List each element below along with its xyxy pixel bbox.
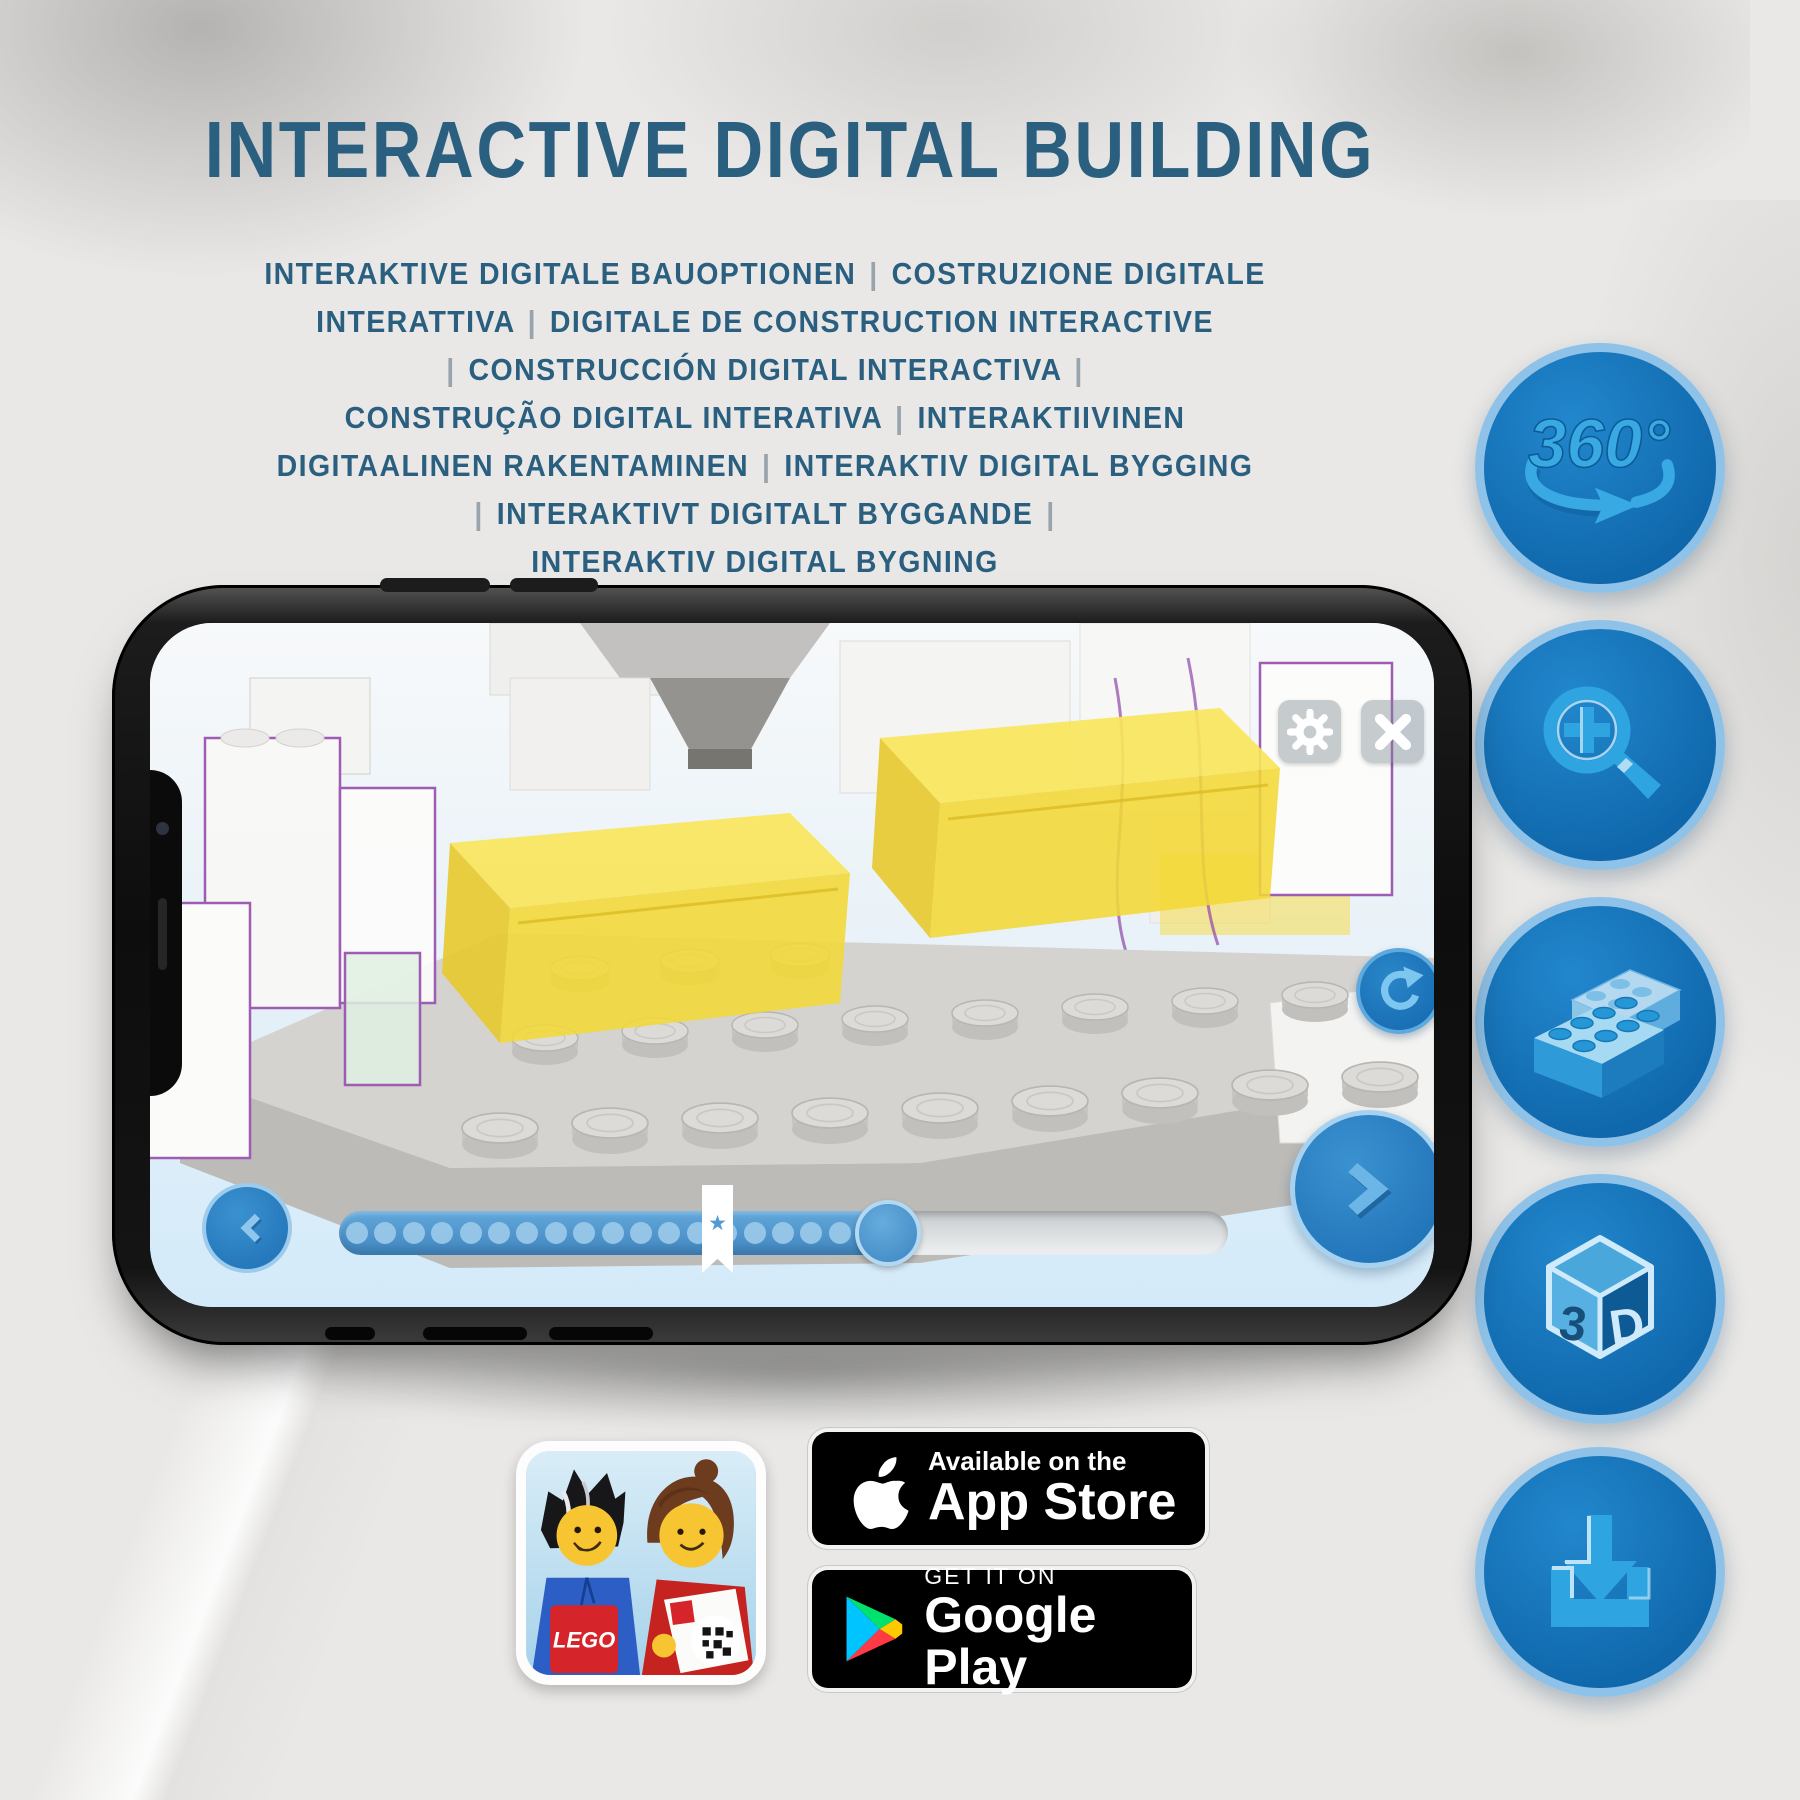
app-store-name: App Store [928, 1475, 1176, 1530]
zoom-in-icon [1525, 670, 1675, 820]
feature-3d-cube: 3 D [1475, 1174, 1725, 1424]
previous-step-button[interactable] [202, 1183, 292, 1273]
subtitle-line: INTERAKTIVE DIGITALE BAUOPTIONEN | COSTR… [93, 250, 1436, 298]
next-step-button[interactable] [1290, 1110, 1434, 1268]
stacked-bricks-icon [1518, 940, 1683, 1105]
rotate-cw-icon [1373, 965, 1425, 1017]
phone-screen: ★ [150, 623, 1434, 1307]
close-button[interactable] [1361, 700, 1424, 763]
feature-360-rotation: ​ 360° [1475, 343, 1725, 593]
progress-dot [829, 1222, 851, 1244]
progress-handle[interactable] [855, 1200, 921, 1266]
subtitle-line: DIGITAALINEN RAKENTAMINEN | INTERAKTIV D… [93, 442, 1436, 490]
google-play-name: Google Play [924, 1589, 1192, 1694]
poster: INTERACTIVE DIGITAL BUILDING INTERAKTIVE… [0, 0, 1800, 1800]
phone-reflection [260, 1352, 1340, 1430]
close-icon [1372, 711, 1414, 753]
progress-dot [488, 1222, 510, 1244]
star-icon: ★ [708, 1211, 727, 1236]
chevron-right-icon [1321, 1141, 1417, 1237]
subtitle-line: CONSTRUÇÃO DIGITAL INTERATIVA | INTERAKT… [93, 394, 1436, 442]
front-camera [156, 822, 169, 835]
speaker-slot [549, 1327, 653, 1340]
volume-button [380, 578, 490, 592]
progress-dot [630, 1222, 652, 1244]
subtitle-line: | INTERAKTIVT DIGITALT BYGGANDE | [93, 490, 1436, 538]
google-play-icon [836, 1586, 908, 1672]
speaker-slot [325, 1327, 375, 1340]
earpiece [158, 898, 167, 970]
page-title: INTERACTIVE DIGITAL BUILDING [162, 104, 1418, 196]
lego-logo: LEGO [553, 1627, 615, 1652]
google-play-badge[interactable]: GET IT ON Google Play [812, 1570, 1192, 1688]
yellow-slope-brick [872, 708, 1280, 938]
progress-dot [460, 1222, 482, 1244]
chevron-left-icon [221, 1202, 273, 1254]
settings-button[interactable] [1278, 700, 1341, 763]
progress-dot [403, 1222, 425, 1244]
subtitle-line: INTERAKTIV DIGITAL BYGNING [93, 538, 1436, 586]
multilingual-subtitle: INTERAKTIVE DIGITALE BAUOPTIONEN | COSTR… [35, 250, 1495, 586]
app-store-tagline: Available on the [928, 1448, 1176, 1475]
feature-download [1475, 1447, 1725, 1697]
build-progress-track[interactable]: ★ [339, 1211, 1228, 1255]
rotate-button[interactable] [1356, 948, 1434, 1034]
3d-cube-icon: 3 D [1525, 1224, 1675, 1374]
phone-mockup: ★ [112, 585, 1472, 1345]
google-play-tagline: GET IT ON [924, 1564, 1192, 1588]
download-icon [1525, 1497, 1675, 1647]
progress-dot [346, 1222, 368, 1244]
camera-notch [150, 770, 182, 1096]
lego-app-icon[interactable]: LEGO [516, 1441, 766, 1685]
speaker-slot [423, 1327, 527, 1340]
360-rotation-icon: ​ 360° [1512, 388, 1688, 548]
subtitle-line: | CONSTRUCCIÓN DIGITAL INTERACTIVA | [93, 346, 1436, 394]
progress-dot [744, 1222, 766, 1244]
lego-app-artwork: LEGO [526, 1451, 756, 1675]
cube-letter-d: D [1606, 1298, 1648, 1355]
feature-stacked-bricks [1475, 897, 1725, 1147]
feature-zoom-in [1475, 620, 1725, 870]
progress-dot [602, 1222, 624, 1244]
gear-icon [1287, 709, 1333, 755]
progress-dot [772, 1222, 794, 1244]
subtitle-line: INTERATTIVA | DIGITALE DE CONSTRUCTION I… [93, 298, 1436, 346]
lego-3d-model [150, 623, 1434, 1307]
volume-button [510, 578, 598, 592]
360-label: 360° [1528, 406, 1670, 482]
app-store-badge[interactable]: Available on the App Store [812, 1432, 1205, 1545]
apple-icon [838, 1447, 910, 1531]
yellow-slope-brick [442, 813, 850, 1043]
progress-dot [545, 1222, 567, 1244]
